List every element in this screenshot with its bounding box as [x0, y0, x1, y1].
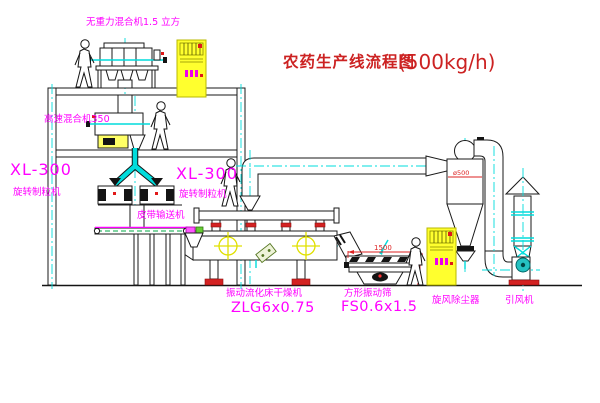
belt-conveyor	[94, 227, 188, 285]
label-sieve-model: FS0.6x1.5	[341, 299, 418, 315]
cyclone-discharge	[456, 251, 475, 261]
rotary-granulator-right	[140, 178, 174, 204]
label-cyclone-diameter: ø500	[453, 169, 469, 177]
label-dryer-model: ZLG6x0.75	[231, 300, 315, 316]
label-sieve-width-dim: 1500	[374, 244, 392, 252]
label-granulator-left-model: XL-300	[10, 160, 72, 179]
label-granulator-left-name: 旋转制粒机	[13, 186, 61, 198]
cyclone-inlet-cone	[426, 156, 447, 176]
label-cyclone: 旋风除尘器	[432, 294, 480, 306]
cad-flow-diagram: 农药生产线流程图 (500kg/h) 无重力混合机1.5 立方 高速混合机350…	[0, 0, 600, 403]
induced-draft-fan	[509, 257, 539, 285]
label-gravity-free-mixer: 无重力混合机1.5 立方	[86, 16, 180, 28]
control-cabinet-top	[177, 40, 206, 97]
label-granulator-right-model: XL-300	[176, 164, 238, 183]
person-mid-floor	[151, 102, 170, 149]
cyclone-vortex-finder	[455, 141, 476, 162]
control-cabinet-cyclone	[427, 228, 456, 285]
label-fan: 引风机	[505, 294, 534, 306]
label-dryer-name: 振动流化床干燥机	[226, 287, 303, 299]
dryer-foot-pad	[292, 279, 310, 285]
fluid-bed-dryer	[184, 208, 339, 285]
dryer-foot-pad	[205, 279, 223, 285]
label-sieve-name: 方形振动筛	[344, 287, 392, 299]
person-top-floor	[75, 40, 94, 87]
stack-rain-cap	[506, 177, 539, 194]
fan-base	[509, 280, 539, 285]
label-belt-conveyor: 皮带输送机	[137, 209, 185, 221]
rotary-granulator-left	[98, 178, 132, 204]
gravity-free-mixer	[87, 38, 167, 94]
label-granulator-right-name: 旋转制粒机	[179, 188, 227, 200]
diagram-title: 农药生产线流程图	[282, 52, 415, 71]
diagram-canvas: 农药生产线流程图 (500kg/h) 无重力混合机1.5 立方 高速混合机350…	[0, 0, 600, 403]
diagram-title-capacity: (500kg/h)	[398, 50, 495, 74]
label-high-speed-mixer: 高速混合机350	[44, 113, 110, 125]
